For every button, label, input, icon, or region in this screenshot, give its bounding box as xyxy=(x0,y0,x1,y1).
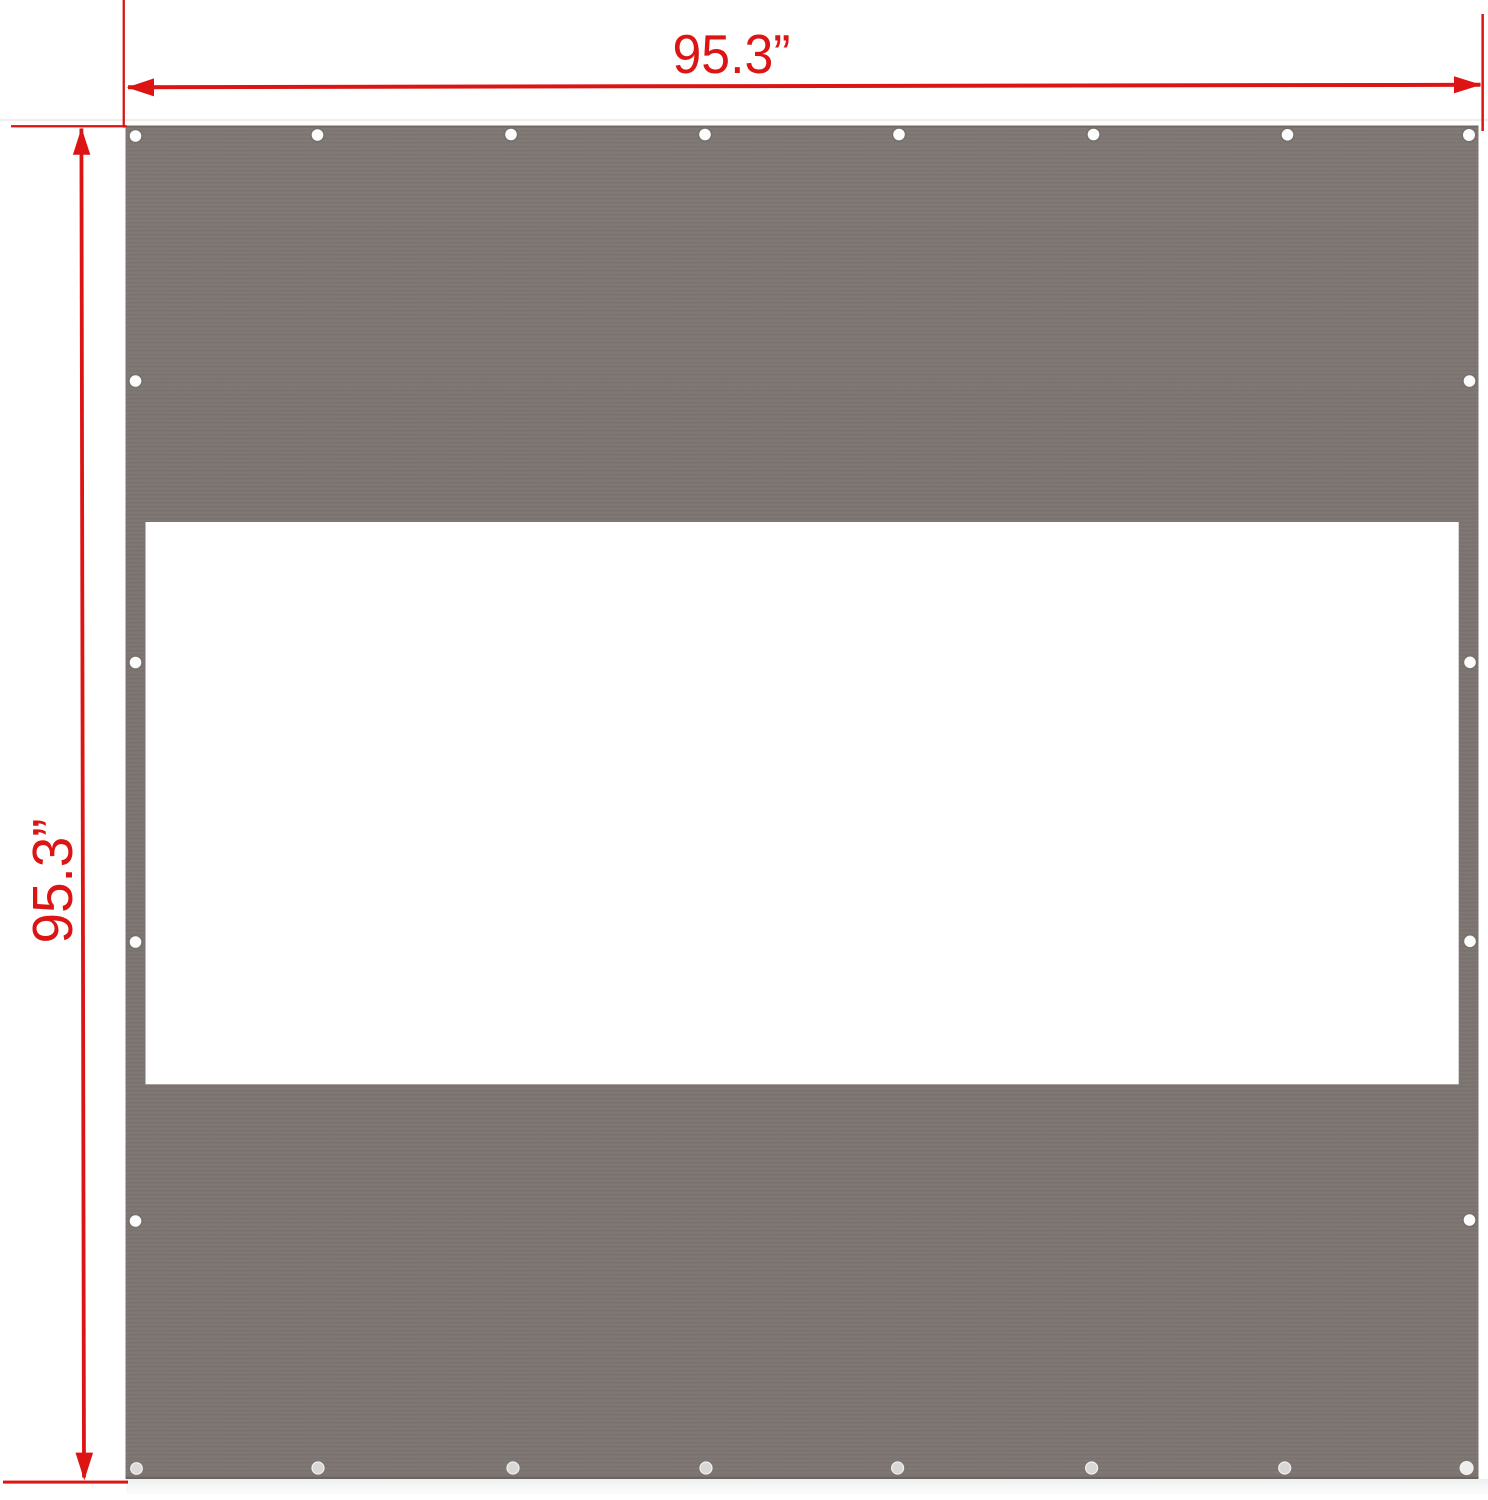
svg-text:95.3”: 95.3” xyxy=(673,23,791,85)
svg-text:95.3”: 95.3” xyxy=(21,819,85,944)
